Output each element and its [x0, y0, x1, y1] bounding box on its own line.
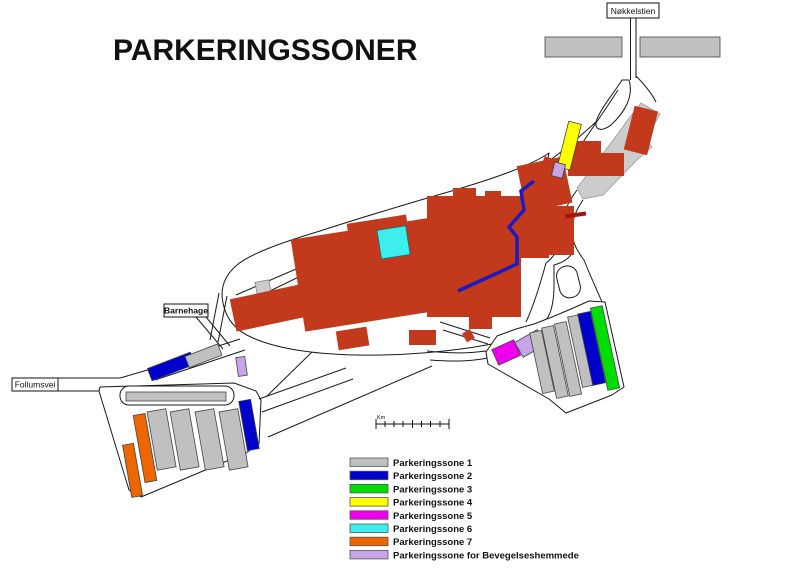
zone1-parking-bar: [640, 37, 720, 57]
legend-label-zone5: Parkeringssone 5: [393, 511, 473, 522]
scale-unit-label: Km: [377, 415, 386, 421]
road-island: [554, 264, 582, 300]
building-east-block: [427, 196, 521, 317]
road-segment: [636, 76, 656, 102]
barnehage-label: Barnehage: [164, 306, 208, 316]
building-annex: [409, 330, 436, 345]
legend: Parkeringssone 1 Parkeringssone 2 Parker…: [350, 458, 579, 561]
legend-swatch-zone7: [350, 537, 388, 546]
legend-label-zone3: Parkeringssone 3: [393, 484, 472, 495]
legend-label-zone2: Parkeringssone 2: [393, 471, 472, 482]
road-segment: [268, 366, 432, 437]
legend-swatch-disabled: [350, 550, 388, 559]
zone1-parking-bar: [545, 37, 622, 57]
page-title: PARKERINGSSONER: [113, 34, 418, 67]
legend-swatch-zone2: [350, 471, 388, 480]
building-annex: [453, 188, 476, 208]
legend-label-zone7: Parkeringssone 7: [393, 537, 472, 548]
road-segment: [430, 358, 488, 361]
parking-zones-map-page: Km Nøkkelstien Barnehage Follumsvei PARK…: [0, 0, 800, 569]
legend-swatch-zone6: [350, 524, 388, 533]
legend-label-disabled: Parkeringssone for Bevegelseshemmede: [393, 550, 579, 561]
zone1-parking-bar: [126, 392, 226, 401]
zone6-parking-bar: [377, 226, 410, 259]
disabled-parking-bar: [236, 356, 248, 376]
follumsvei-label: Follumsvei: [15, 380, 56, 390]
map-canvas: Km Nøkkelstien Barnehage Follumsvei PARK…: [0, 0, 800, 569]
road-segment: [584, 260, 602, 302]
road-segment: [210, 293, 219, 340]
scale-bar: Km: [376, 415, 449, 429]
building-wing: [544, 206, 574, 255]
road-loop: [596, 80, 631, 129]
road-segment: [266, 352, 312, 397]
nokkelstien-label: Nøkkelstien: [611, 6, 656, 16]
building-northeast: [624, 106, 658, 155]
legend-swatch-zone5: [350, 511, 388, 520]
building-northeast: [597, 153, 624, 176]
road-segment: [259, 368, 346, 399]
building-annex: [469, 311, 492, 329]
legend-swatch-zone3: [350, 484, 388, 493]
legend-swatch-zone1: [350, 458, 388, 467]
legend-label-zone1: Parkeringssone 1: [393, 458, 473, 469]
legend-label-zone6: Parkeringssone 6: [393, 524, 472, 535]
legend-swatch-zone4: [350, 498, 388, 507]
legend-label-zone4: Parkeringssone 4: [393, 498, 473, 509]
building-annex: [485, 191, 501, 205]
road-segment: [58, 369, 151, 378]
road-segment: [262, 379, 353, 412]
